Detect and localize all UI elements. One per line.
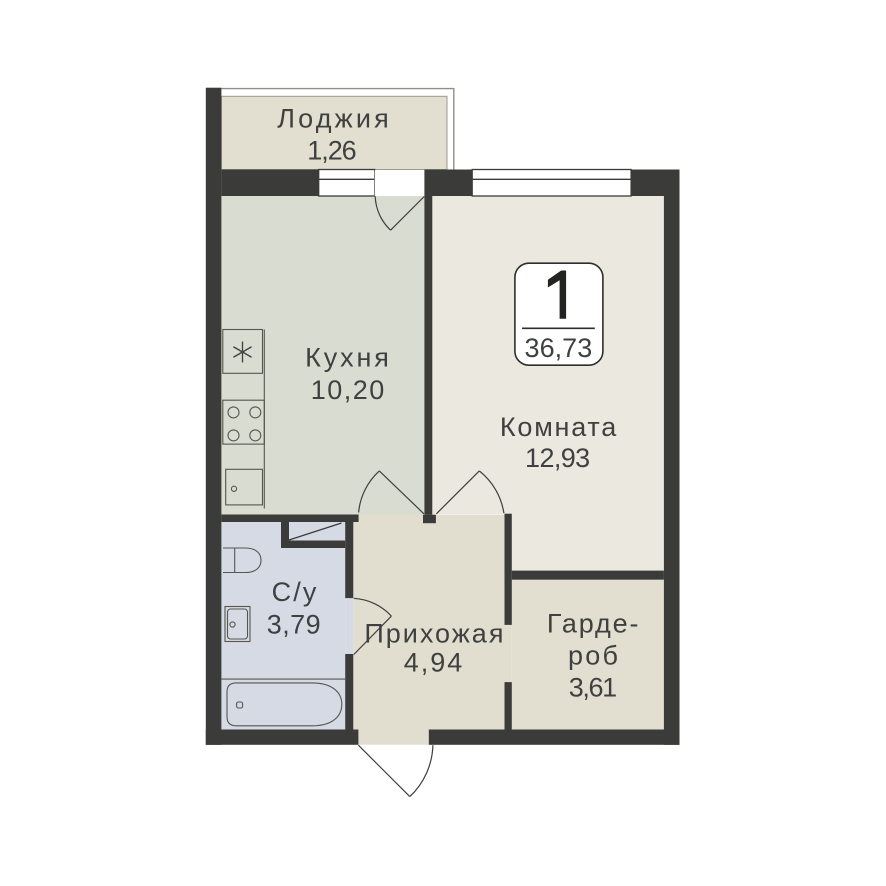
svg-text:3,79: 3,79	[267, 609, 321, 639]
svg-text:Кухня: Кухня	[305, 343, 389, 373]
svg-text:12,93: 12,93	[525, 443, 590, 473]
svg-text:роб: роб	[568, 640, 618, 670]
svg-text:10,20: 10,20	[311, 375, 385, 405]
svg-text:36,73: 36,73	[525, 333, 593, 363]
svg-text:4,94: 4,94	[404, 647, 463, 677]
svg-text:С/у: С/у	[272, 577, 317, 607]
svg-text:3,61: 3,61	[569, 673, 617, 703]
svg-text:1,26: 1,26	[307, 135, 356, 165]
